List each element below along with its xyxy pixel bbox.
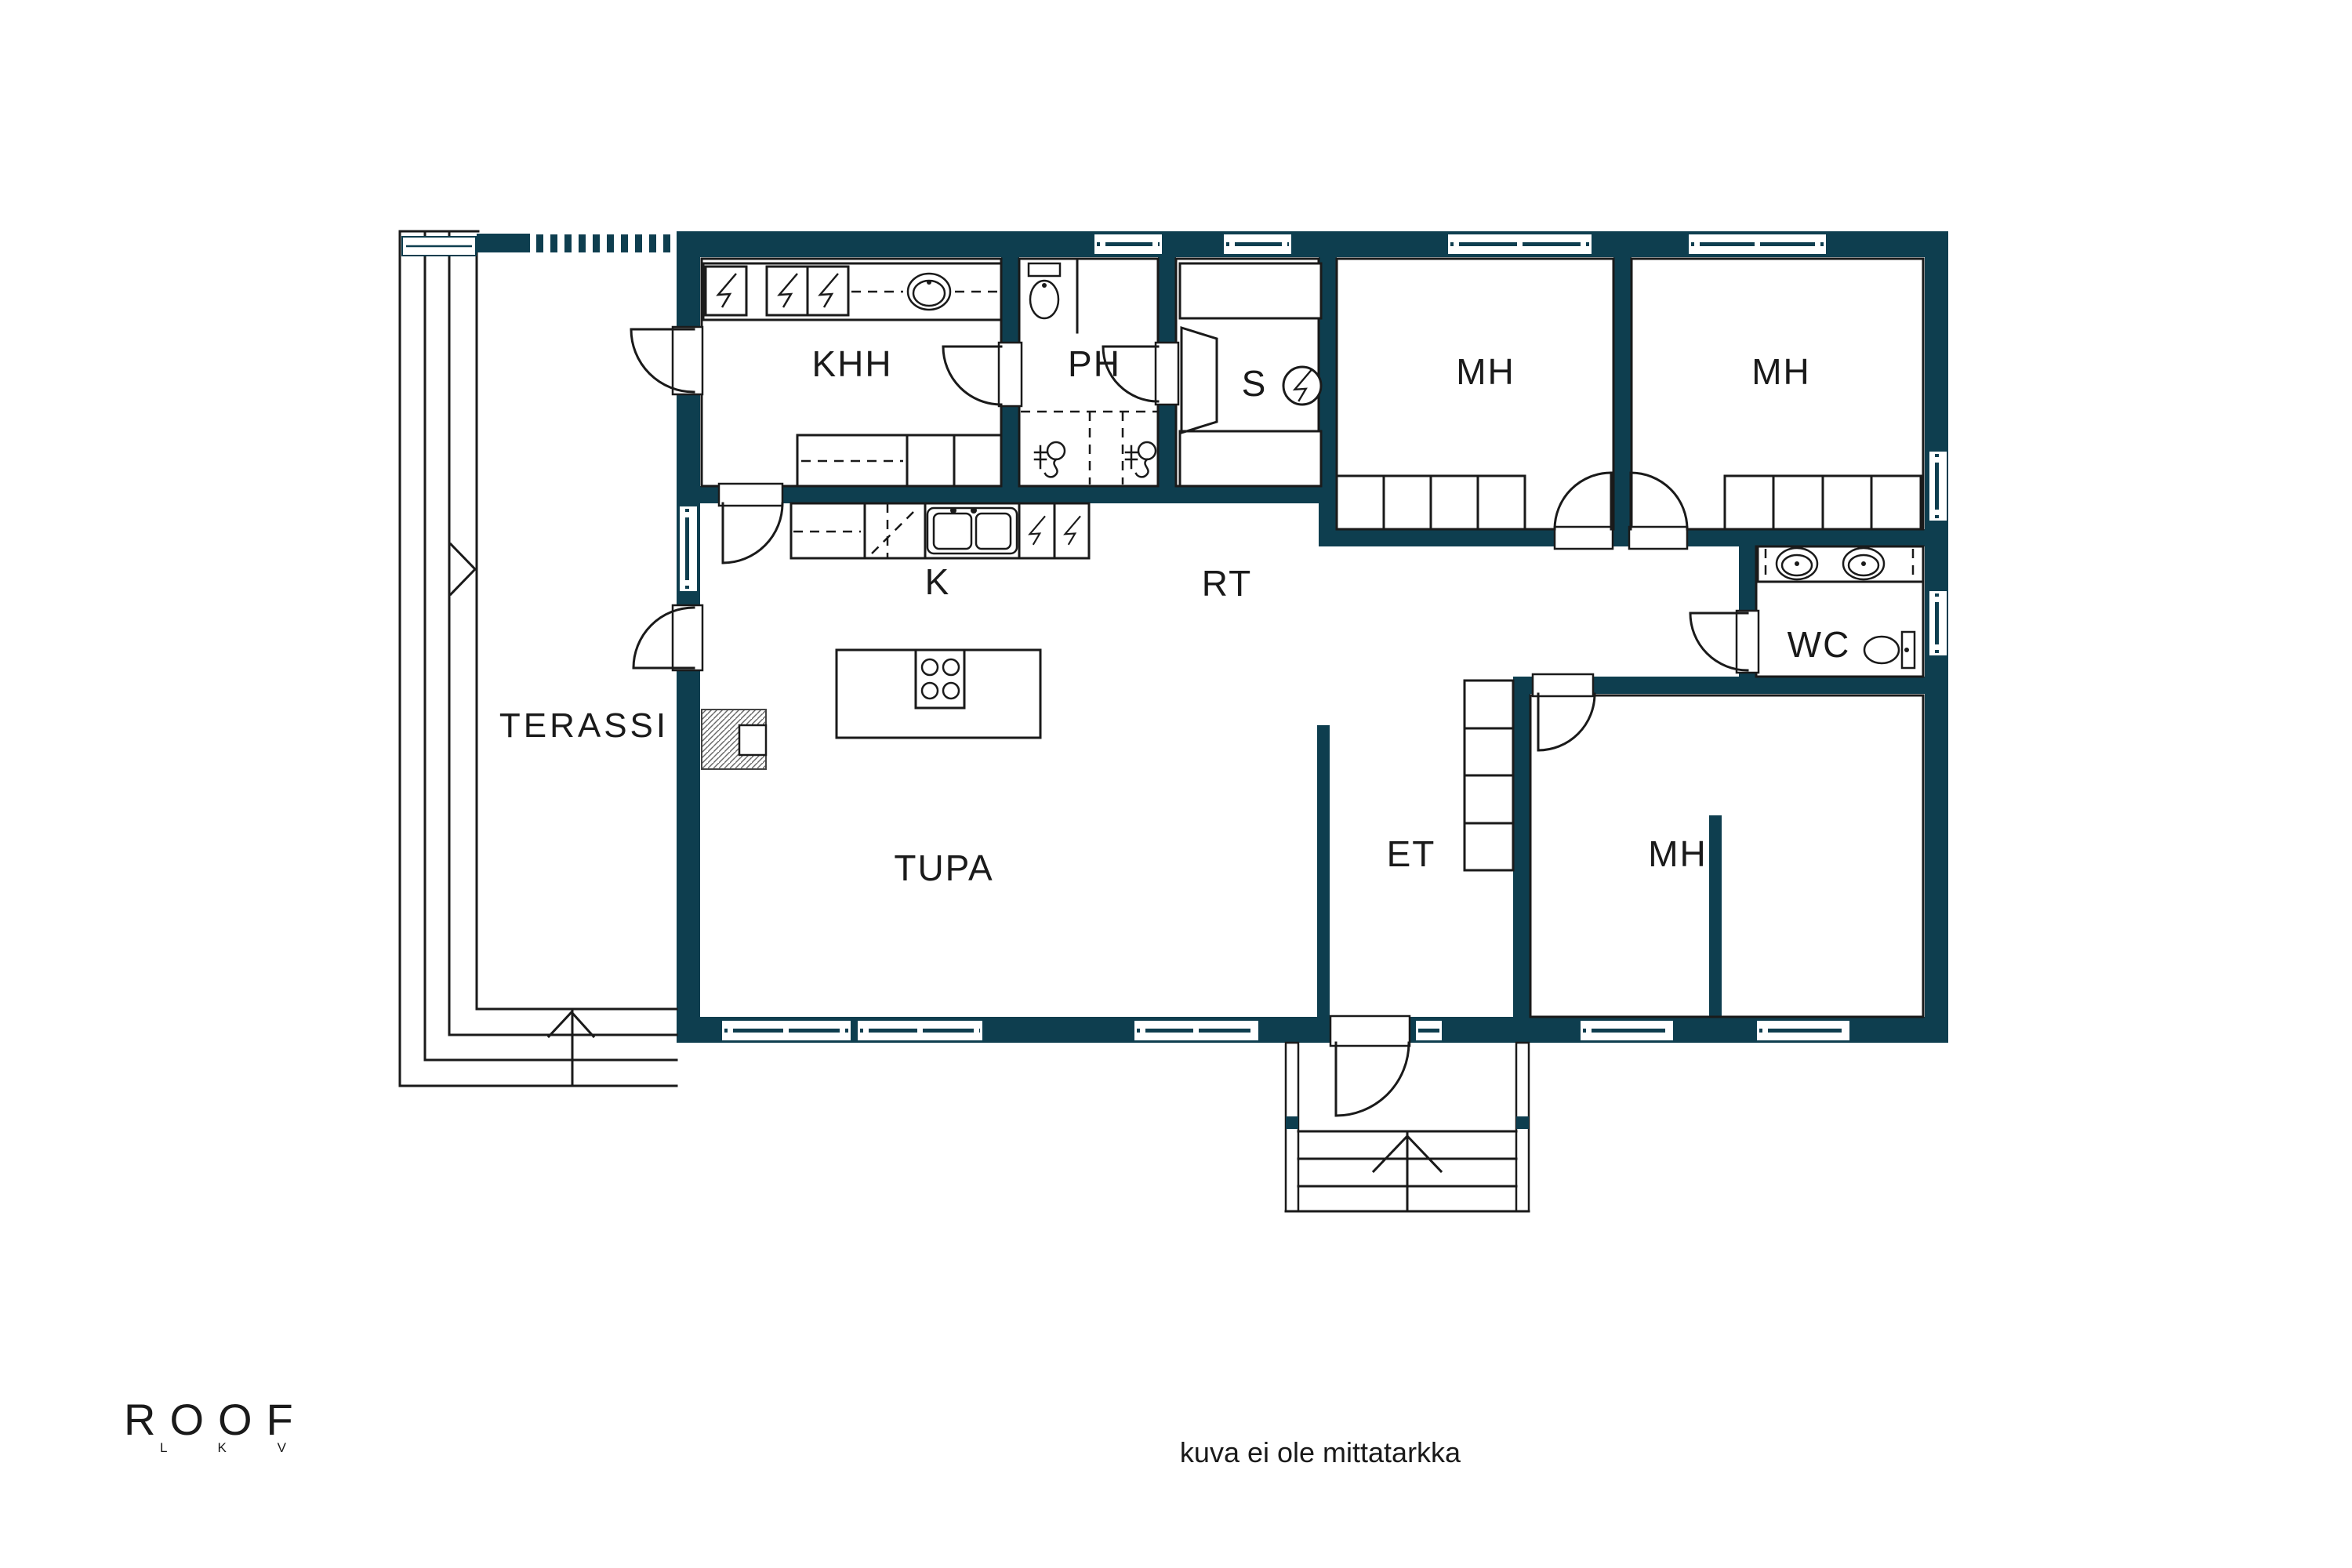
door-khh-ph — [943, 343, 1022, 406]
room-mh-bottom — [1530, 695, 1923, 1017]
wc-sink-icon — [1777, 548, 1817, 579]
direction-arrow-icon — [451, 544, 475, 594]
entrance-porch — [1286, 1043, 1529, 1211]
room-label-mh-top-left: MH — [1456, 351, 1515, 392]
door-hall-wc — [1690, 611, 1759, 673]
room-label-khh: KHH — [811, 343, 892, 384]
roof-logo: ROOF L K V — [124, 1395, 310, 1455]
window — [1580, 1020, 1674, 1041]
window — [679, 506, 698, 592]
window — [1447, 234, 1592, 255]
window — [1415, 1020, 1443, 1041]
room-label-tupa: TUPA — [894, 848, 993, 888]
wall-mh3-partial — [1709, 815, 1722, 1018]
floor-plan-canvas: KHH PH S MH MH K RT WC TERASSI TUPA ET M… — [0, 0, 2352, 1568]
floor-plan-page: KHH PH S MH MH K RT WC TERASSI TUPA ET M… — [0, 0, 2352, 1568]
window — [1756, 1020, 1850, 1041]
window — [1929, 590, 1947, 656]
sauna-stove-icon — [1283, 367, 1321, 405]
wall-mh-mh — [1613, 257, 1632, 546]
laundry-sink-icon — [908, 274, 950, 310]
room-label-sauna: S — [1242, 363, 1268, 404]
door-hall-mh2 — [1629, 473, 1687, 549]
pergola-ticks — [536, 234, 670, 252]
island-hob-icon — [837, 650, 1040, 738]
washing-machine-icon — [767, 267, 808, 315]
sauna-bench-icon — [1180, 263, 1321, 318]
sauna-bench-profile — [1181, 328, 1217, 433]
wardrobe-icon — [1725, 476, 1921, 529]
wall-et-mh3 — [1513, 694, 1530, 1018]
wall-mh1-hall — [1337, 529, 1556, 546]
room-label-rt: RT — [1202, 563, 1253, 604]
fireplace-icon — [702, 710, 766, 769]
porch-post — [1286, 1116, 1298, 1129]
wall-khh-kitchen — [700, 486, 1337, 503]
khh-cabinet — [797, 435, 1001, 486]
porch-post — [1516, 1116, 1529, 1129]
entrance-steps-icon — [1286, 1131, 1529, 1211]
room-label-terassi: TERASSI — [499, 706, 669, 745]
room-label-mh-top-right: MH — [1751, 351, 1811, 392]
room-label-kitchen: K — [925, 561, 951, 602]
disclaimer-text: kuva ei ole mittatarkka — [1180, 1436, 1461, 1468]
room-label-mh-bottom: MH — [1648, 833, 1708, 874]
wall-stub — [1611, 529, 1631, 546]
window — [1094, 234, 1163, 255]
window — [1688, 234, 1827, 255]
door-khh-kitchen — [719, 484, 782, 563]
room-label-wc: WC — [1788, 624, 1851, 665]
room-label-et: ET — [1387, 833, 1436, 874]
door-hall-mh3 — [1533, 674, 1595, 750]
window — [1134, 1020, 1259, 1041]
window — [1223, 234, 1292, 255]
room-label-ph: PH — [1068, 343, 1121, 384]
window — [1929, 451, 1947, 521]
window — [857, 1020, 983, 1041]
sauna-bench-icon — [1180, 431, 1321, 486]
washing-machine-icon — [808, 267, 848, 315]
toilet-icon — [1864, 632, 1915, 668]
window — [721, 1020, 851, 1041]
wardrobe-icon — [1337, 476, 1525, 529]
door-terrace-tupa — [633, 605, 702, 670]
logo-text: ROOF — [124, 1395, 307, 1444]
toilet-icon — [1029, 263, 1060, 318]
door-terrace-khh — [631, 327, 702, 394]
door-hall-mh1 — [1555, 473, 1613, 549]
shower-icon — [1126, 442, 1156, 477]
washing-machine-icon — [706, 267, 746, 315]
khh-counter — [703, 263, 1001, 320]
hall-closet-icon — [1465, 681, 1513, 870]
kitchen-sink-icon — [927, 507, 1017, 554]
front-door — [1330, 1016, 1410, 1116]
wall-tupa-et-partial — [1317, 725, 1330, 1020]
kitchen-counter — [791, 503, 1089, 558]
wall-mh2-wc — [1686, 529, 1948, 546]
terrace-wall-block — [477, 234, 530, 252]
logo-letters: L K V — [160, 1440, 310, 1455]
shower-icon — [1035, 442, 1065, 477]
wc-sink-icon — [1843, 548, 1884, 579]
